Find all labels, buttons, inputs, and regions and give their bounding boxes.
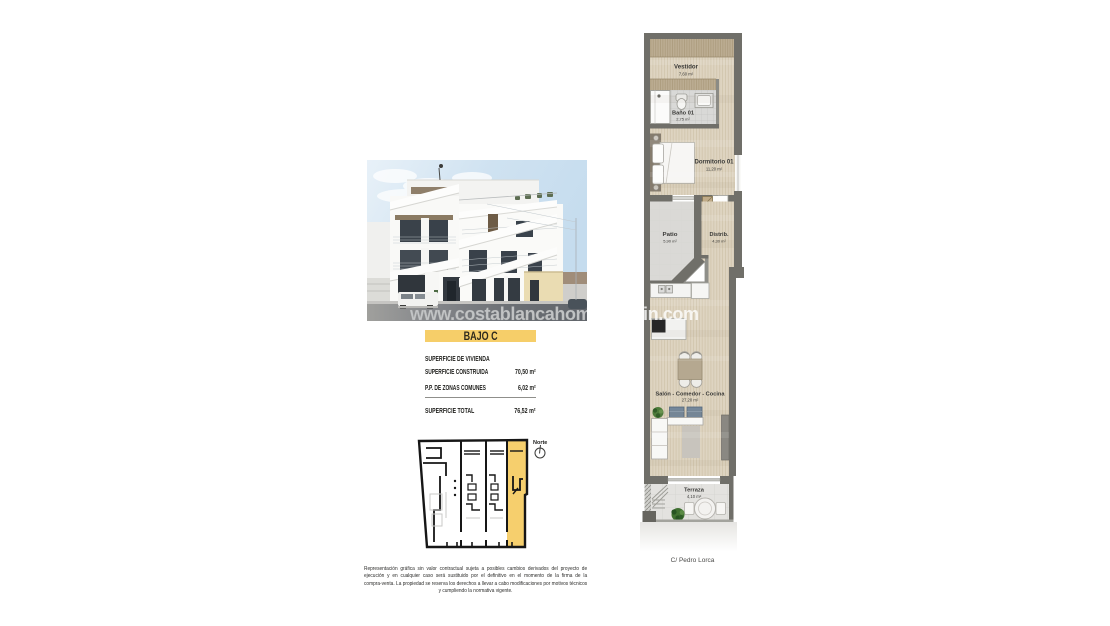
svg-text:27,20 m²: 27,20 m² [682,398,699,403]
svg-text:5,90 m²: 5,90 m² [663,239,677,244]
svg-text:2,75 m²: 2,75 m² [676,117,690,122]
svg-text:Dormitorio 01: Dormitorio 01 [695,159,735,166]
svg-text:in.com: in.com [643,304,699,324]
svg-text:Terraza: Terraza [684,488,705,494]
svg-text:www.costablancahom: www.costablancahom [409,304,587,321]
svg-text:Patio: Patio [663,232,678,238]
svg-text:4,10 m²: 4,10 m² [687,494,702,499]
svg-text:Vestidor: Vestidor [674,65,699,71]
svg-text:Distrib.: Distrib. [710,232,729,238]
svg-text:11,20 m²: 11,20 m² [706,167,723,172]
svg-text:7,60 m²: 7,60 m² [679,72,694,77]
